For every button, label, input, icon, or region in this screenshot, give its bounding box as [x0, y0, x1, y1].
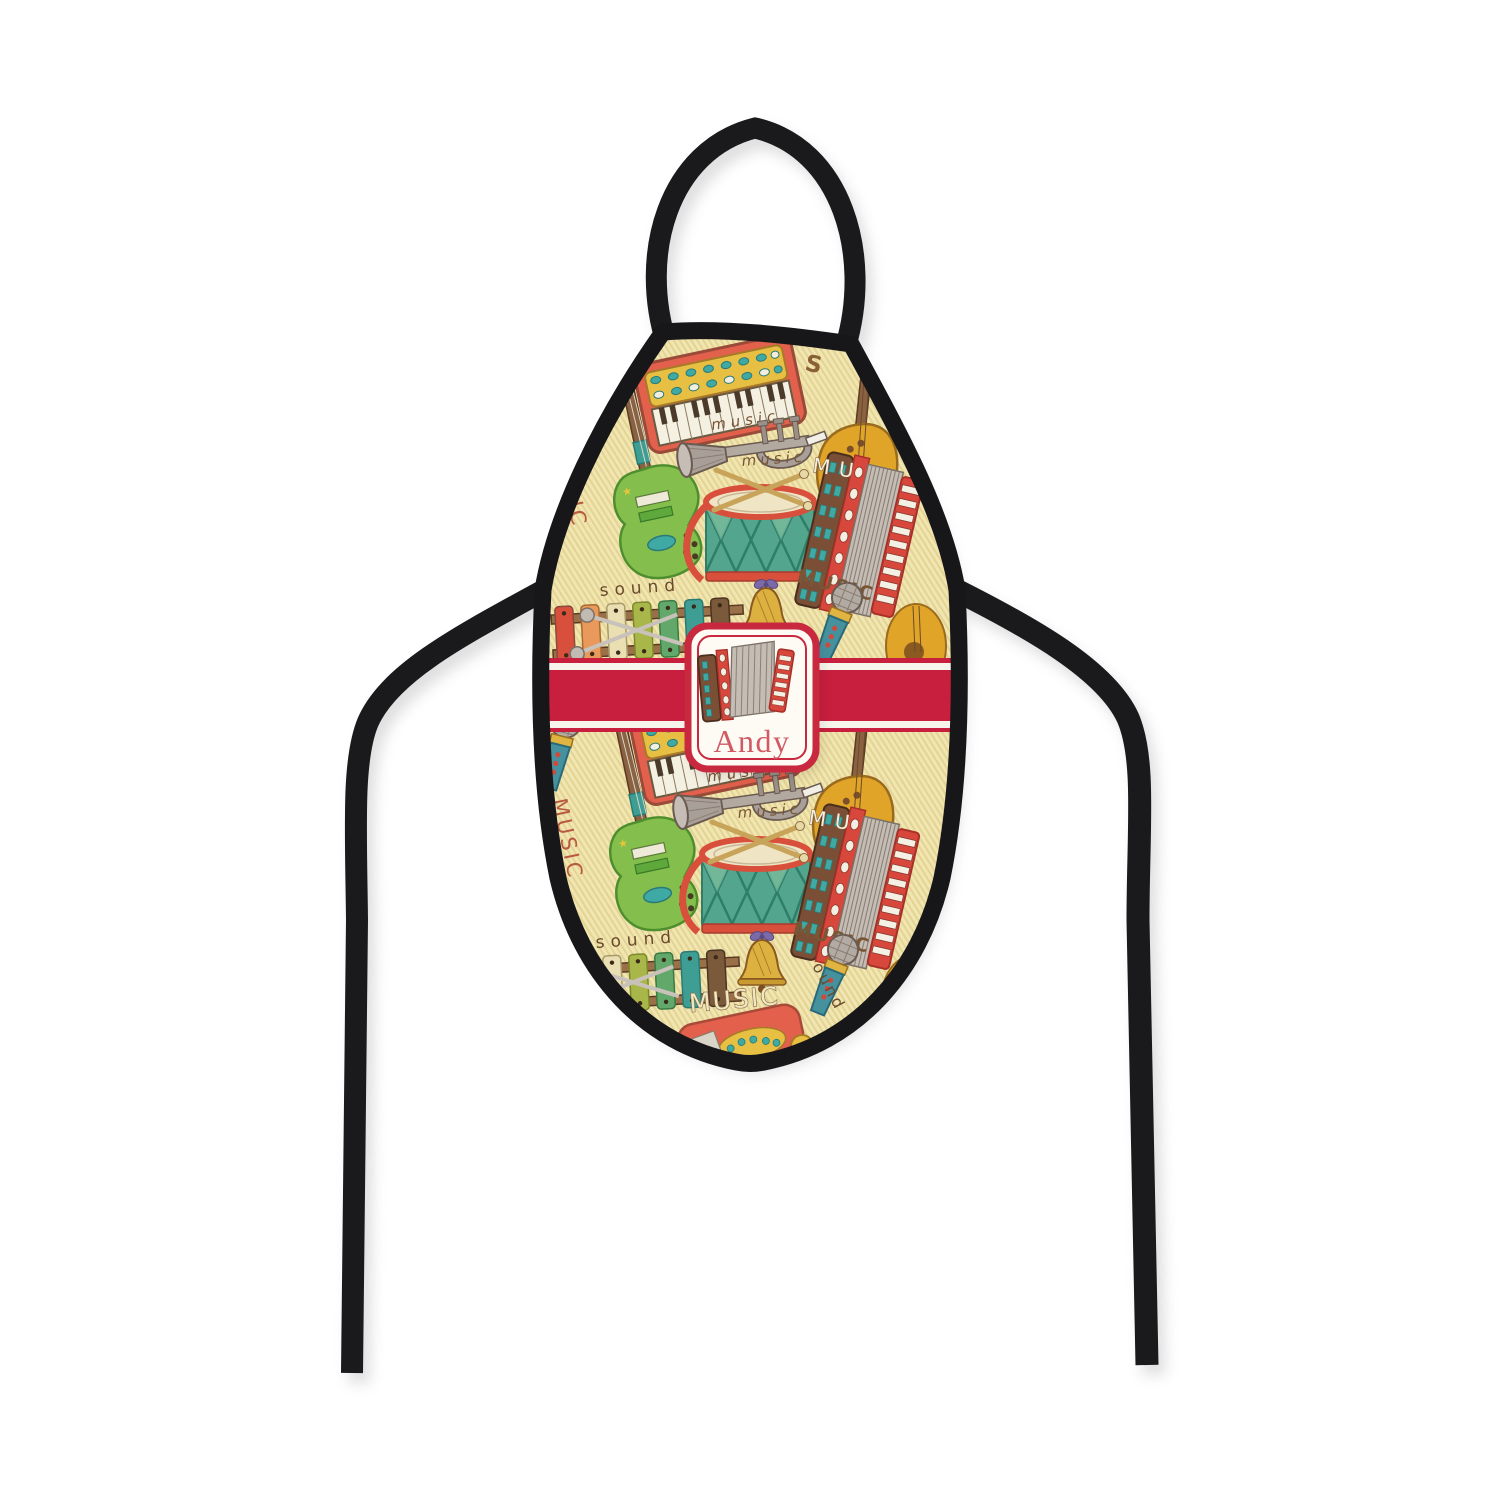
name-plate: Andy: [688, 626, 820, 775]
bottle-apron-image: MUSIC music S: [0, 0, 1500, 1500]
neck-strap: [656, 128, 855, 345]
waist-tie-right: [952, 588, 1147, 1365]
product-image: MUSIC music S: [0, 0, 1500, 1500]
waist-tie-left: [352, 588, 548, 1373]
personalized-name: Andy: [713, 723, 790, 759]
